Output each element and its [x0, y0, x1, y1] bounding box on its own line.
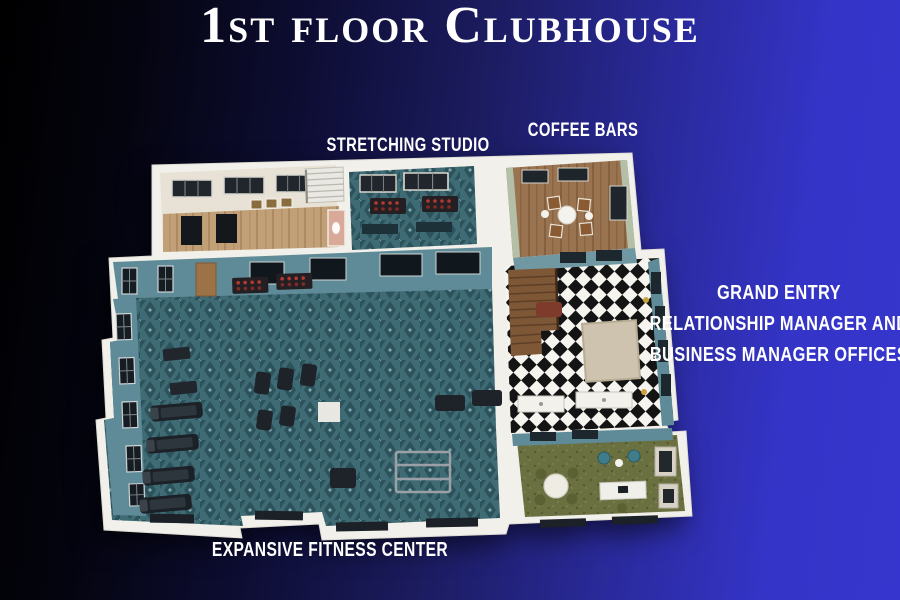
plyo-box [318, 402, 340, 422]
room-hallway [160, 165, 345, 252]
label-grand-entry-line2: Relationship Manager and [650, 308, 900, 339]
entry-sofa [536, 302, 562, 317]
label-grand-entry-offices: Grand Entry Relationship Manager and Bus… [650, 277, 900, 370]
room-manager-offices [512, 428, 685, 517]
room-coffee-bars [506, 160, 635, 258]
framed-pictures [251, 198, 292, 209]
label-grand-entry-line3: Business Manager Offices [650, 339, 900, 370]
hallway-staircase [305, 167, 344, 203]
fitness-door [196, 263, 216, 296]
label-stretching-studio: Stretching Studio [326, 135, 489, 157]
label-coffee-bars: Coffee Bars [528, 120, 639, 142]
label-grand-entry-line1: Grand Entry [650, 277, 900, 308]
entry-rug [582, 320, 640, 382]
clubhouse-building [96, 153, 692, 540]
bathroom [328, 210, 345, 246]
room-stretching-studio [349, 166, 477, 250]
label-fitness-center: Expansive Fitness Center [212, 539, 448, 562]
